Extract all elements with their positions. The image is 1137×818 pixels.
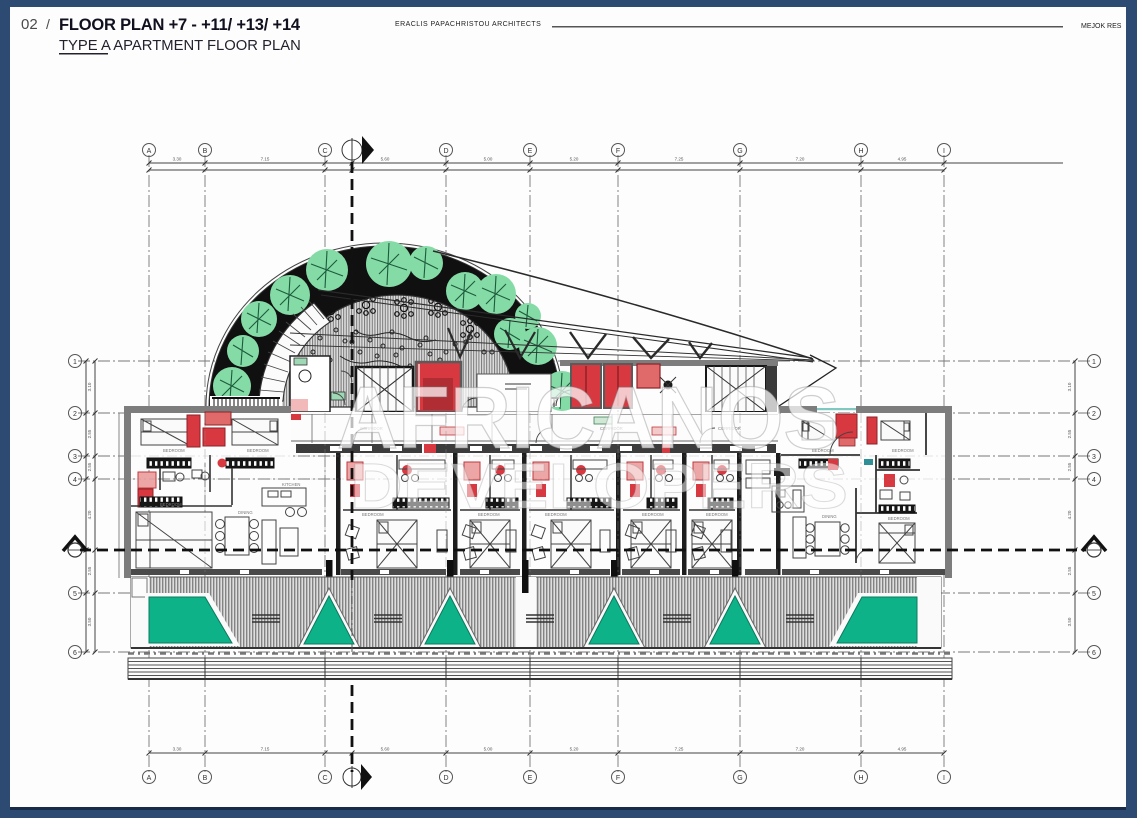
svg-text:4.20: 4.20 <box>87 510 92 519</box>
svg-text:BEDROOM: BEDROOM <box>163 448 185 453</box>
svg-text:/: / <box>46 16 50 32</box>
svg-text:3.50: 3.50 <box>1067 617 1072 626</box>
svg-text:A: A <box>147 775 152 782</box>
svg-text:3: 3 <box>73 454 77 461</box>
svg-text:6: 6 <box>1092 650 1096 657</box>
svg-text:F: F <box>616 148 620 155</box>
svg-text:7.25: 7.25 <box>675 747 684 752</box>
svg-text:4.95: 4.95 <box>898 747 907 752</box>
svg-text:G: G <box>737 148 742 155</box>
svg-text:5.60: 5.60 <box>381 157 390 162</box>
svg-text:1: 1 <box>73 359 77 366</box>
svg-text:2.55: 2.55 <box>87 462 92 471</box>
svg-text:7.20: 7.20 <box>796 157 805 162</box>
svg-text:E: E <box>528 775 533 782</box>
svg-text:B: B <box>203 148 208 155</box>
svg-text:5.00: 5.00 <box>484 157 493 162</box>
svg-text:3.30: 3.30 <box>173 747 182 752</box>
svg-text:BEDROOM: BEDROOM <box>247 448 269 453</box>
svg-text:5.00: 5.00 <box>484 747 493 752</box>
svg-text:TYPE A APARTMENT FLOOR PLAN: TYPE A APARTMENT FLOOR PLAN <box>59 38 301 54</box>
svg-text:3: 3 <box>1092 454 1096 461</box>
svg-text:ERACLIS PAPACHRISTOU ARCHITECT: ERACLIS PAPACHRISTOU ARCHITECTS <box>395 21 541 28</box>
svg-text:I: I <box>943 775 945 782</box>
svg-text:D: D <box>443 148 448 155</box>
svg-text:H: H <box>858 148 863 155</box>
svg-text:2.55: 2.55 <box>87 429 92 438</box>
svg-text:D: D <box>443 775 448 782</box>
svg-text:2: 2 <box>1092 411 1096 418</box>
svg-text:5.20: 5.20 <box>570 747 579 752</box>
svg-text:2.55: 2.55 <box>1067 566 1072 575</box>
svg-text:5.60: 5.60 <box>381 747 390 752</box>
svg-text:MEJOK RES: MEJOK RES <box>1081 23 1122 30</box>
svg-text:F: F <box>616 775 620 782</box>
svg-text:2.55: 2.55 <box>1067 462 1072 471</box>
svg-text:1: 1 <box>1092 359 1096 366</box>
svg-text:G: G <box>737 775 742 782</box>
svg-text:7.15: 7.15 <box>261 747 270 752</box>
svg-text:I: I <box>943 148 945 155</box>
svg-text:6: 6 <box>73 650 77 657</box>
svg-text:3.10: 3.10 <box>87 382 92 391</box>
svg-text:C: C <box>322 148 327 155</box>
svg-text:KITCHEN: KITCHEN <box>282 482 300 487</box>
svg-text:7.20: 7.20 <box>796 747 805 752</box>
svg-text:3.30: 3.30 <box>173 157 182 162</box>
svg-text:4: 4 <box>1092 477 1096 484</box>
svg-text:2.55: 2.55 <box>87 566 92 575</box>
svg-text:E: E <box>528 148 533 155</box>
svg-text:4.95: 4.95 <box>898 157 907 162</box>
svg-text:BEDROOM: BEDROOM <box>892 448 914 453</box>
svg-text:4.20: 4.20 <box>1067 510 1072 519</box>
svg-text:DINING: DINING <box>238 510 253 515</box>
svg-text:02: 02 <box>21 16 38 33</box>
svg-text:BEDROOM: BEDROOM <box>888 516 910 521</box>
svg-text:5: 5 <box>1092 591 1096 598</box>
svg-text:B: B <box>203 775 208 782</box>
svg-text:3.10: 3.10 <box>1067 382 1072 391</box>
svg-text:FLOOR PLAN +7 - +11/ +13/ +14: FLOOR PLAN +7 - +11/ +13/ +14 <box>59 16 301 34</box>
svg-text:C: C <box>322 775 327 782</box>
svg-text:7.25: 7.25 <box>675 157 684 162</box>
svg-text:BEDROOM: BEDROOM <box>160 502 182 507</box>
svg-text:7.15: 7.15 <box>261 157 270 162</box>
svg-text:2: 2 <box>73 411 77 418</box>
svg-text:5.20: 5.20 <box>570 157 579 162</box>
svg-text:5: 5 <box>73 591 77 598</box>
svg-text:DEVELOPERS: DEVELOPERS <box>350 450 848 522</box>
svg-text:3.50: 3.50 <box>87 617 92 626</box>
svg-text:2.55: 2.55 <box>1067 429 1072 438</box>
svg-text:A: A <box>147 148 152 155</box>
svg-text:4: 4 <box>73 477 77 484</box>
svg-text:H: H <box>858 775 863 782</box>
